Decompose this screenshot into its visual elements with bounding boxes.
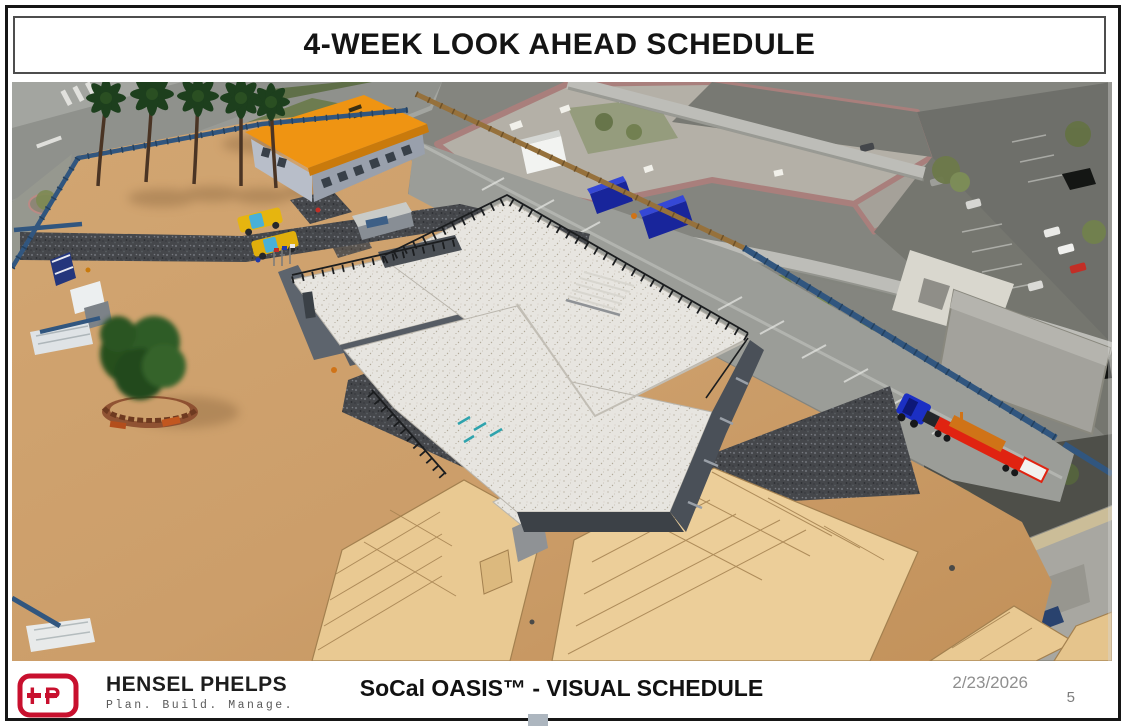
construction-site-render [12, 82, 1112, 661]
slide-title: 4-WEEK LOOK AHEAD SCHEDULE [304, 28, 816, 62]
bottom-edge-tab [528, 714, 548, 726]
slide-date: 2/23/2026 [952, 673, 1028, 693]
slide-footer: HP HENSEL PHELPS Plan. Build. Manage. So… [0, 661, 1123, 718]
site-render-svg [12, 82, 1112, 661]
slide-page: { "slide": { "title": "4-WEEK LOOK AHEAD… [0, 0, 1123, 726]
worker-figure [631, 213, 637, 219]
slide-page-number: 5 [1067, 689, 1075, 706]
slide-title-box: 4-WEEK LOOK AHEAD SCHEDULE [13, 16, 1106, 74]
